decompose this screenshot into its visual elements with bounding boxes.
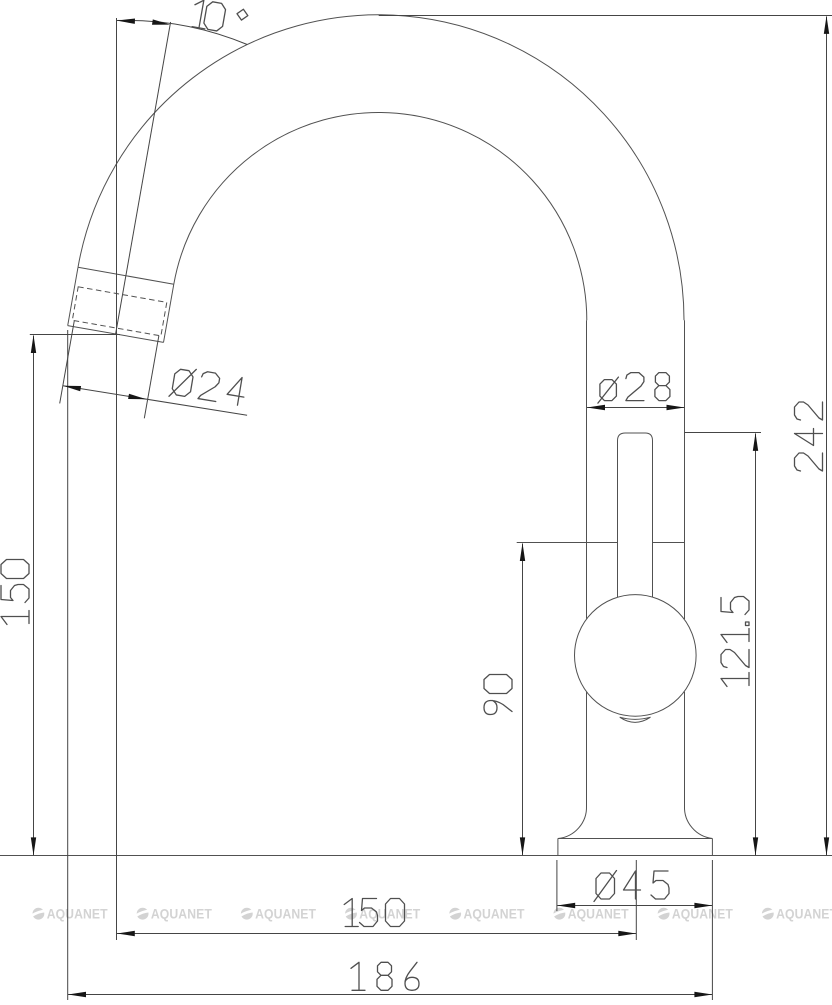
svg-text:AQUANET: AQUANET [151, 907, 212, 922]
svg-text:AQUANET: AQUANET [672, 907, 733, 922]
svg-text:AQUANET: AQUANET [359, 907, 420, 922]
svg-text:AQUANET: AQUANET [776, 907, 832, 922]
svg-text:AQUANET: AQUANET [255, 907, 316, 922]
svg-text:AQUANET: AQUANET [47, 907, 108, 922]
svg-text:AQUANET: AQUANET [568, 907, 629, 922]
svg-text:AQUANET: AQUANET [464, 907, 525, 922]
